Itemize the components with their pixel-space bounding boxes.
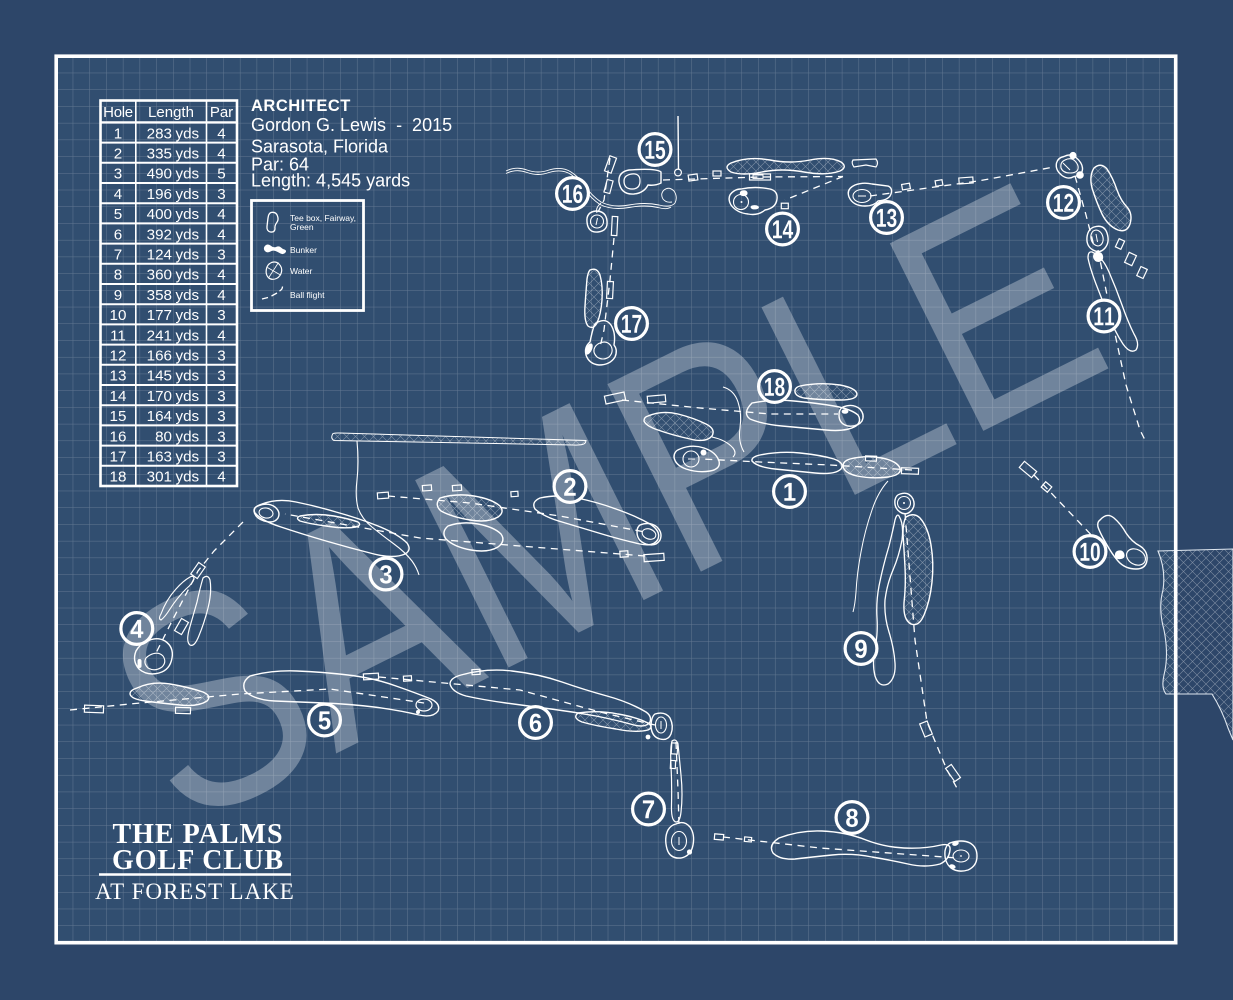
svg-text:3: 3: [217, 348, 225, 365]
svg-text:124: 124: [147, 247, 172, 264]
svg-text:358: 358: [147, 287, 172, 304]
svg-text:163: 163: [147, 449, 172, 466]
svg-text:Length: 4,545 yards: Length: 4,545 yards: [251, 171, 410, 191]
svg-text:yds: yds: [176, 307, 200, 324]
svg-text:490: 490: [147, 166, 172, 183]
svg-text:4: 4: [217, 287, 225, 304]
svg-text:yds: yds: [176, 267, 200, 284]
svg-text:2: 2: [114, 146, 122, 163]
svg-text:3: 3: [217, 428, 225, 445]
svg-text:Green: Green: [290, 222, 314, 232]
svg-text:Hole: Hole: [103, 104, 133, 121]
svg-text:ARCHITECT: ARCHITECT: [251, 97, 351, 115]
svg-text:392: 392: [147, 226, 172, 243]
svg-text:yds: yds: [176, 287, 200, 304]
svg-text:yds: yds: [176, 408, 200, 425]
svg-text:yds: yds: [176, 247, 200, 264]
svg-text:335: 335: [147, 146, 172, 163]
svg-text:yds: yds: [176, 327, 200, 344]
svg-text:360: 360: [147, 267, 172, 284]
svg-text:241: 241: [147, 327, 172, 344]
svg-text:13: 13: [110, 368, 127, 385]
svg-text:yds: yds: [176, 146, 200, 163]
svg-text:15: 15: [110, 408, 127, 425]
svg-text:400: 400: [147, 206, 172, 223]
svg-text:1: 1: [114, 125, 122, 142]
svg-text:10: 10: [110, 307, 127, 324]
svg-text:170: 170: [147, 388, 172, 405]
svg-text:4: 4: [217, 267, 225, 284]
svg-text:4: 4: [217, 226, 225, 243]
svg-text:4: 4: [217, 125, 225, 142]
svg-text:12: 12: [110, 348, 127, 365]
svg-text:8: 8: [114, 267, 122, 284]
svg-text:164: 164: [147, 408, 172, 425]
svg-text:yds: yds: [176, 166, 200, 183]
svg-text:18: 18: [110, 469, 127, 486]
svg-text:4: 4: [217, 146, 225, 163]
svg-text:3: 3: [114, 166, 122, 183]
svg-text:yds: yds: [176, 388, 200, 405]
svg-text:196: 196: [147, 186, 172, 203]
svg-text:yds: yds: [176, 186, 200, 203]
svg-text:Length: Length: [148, 104, 194, 121]
svg-text:3: 3: [217, 388, 225, 405]
svg-text:Bunker: Bunker: [290, 245, 317, 255]
svg-text:yds: yds: [176, 368, 200, 385]
svg-text:5: 5: [114, 206, 122, 223]
svg-text:16: 16: [110, 428, 127, 445]
svg-text:3: 3: [217, 449, 225, 466]
svg-text:80: 80: [155, 428, 172, 445]
svg-text:14: 14: [110, 388, 127, 405]
svg-text:yds: yds: [176, 428, 200, 445]
svg-text:9: 9: [114, 287, 122, 304]
svg-text:145: 145: [147, 368, 172, 385]
svg-text:4: 4: [114, 186, 122, 203]
svg-text:4: 4: [217, 327, 225, 344]
svg-text:yds: yds: [176, 206, 200, 223]
svg-text:5: 5: [217, 166, 225, 183]
svg-text:yds: yds: [176, 449, 200, 466]
svg-text:yds: yds: [176, 469, 200, 486]
svg-text:Gordon G. Lewis - 2015: Gordon G. Lewis - 2015: [251, 115, 452, 135]
svg-text:yds: yds: [176, 348, 200, 365]
svg-text:301: 301: [147, 469, 172, 486]
svg-text:Water: Water: [290, 266, 313, 276]
svg-text:3: 3: [217, 368, 225, 385]
svg-text:3: 3: [217, 307, 225, 324]
svg-text:7: 7: [114, 247, 122, 264]
svg-text:4: 4: [217, 469, 225, 486]
svg-text:3: 3: [217, 186, 225, 203]
svg-text:4: 4: [217, 206, 225, 223]
svg-text:283: 283: [147, 125, 172, 142]
svg-text:Par: Par: [210, 104, 233, 121]
svg-text:166: 166: [147, 348, 172, 365]
svg-text:yds: yds: [176, 226, 200, 243]
svg-text:11: 11: [110, 327, 126, 344]
svg-text:yds: yds: [176, 125, 200, 142]
svg-text:AT FOREST LAKE: AT FOREST LAKE: [95, 879, 295, 904]
svg-text:6: 6: [114, 226, 122, 243]
svg-text:17: 17: [110, 449, 127, 466]
svg-text:Ball flight: Ball flight: [290, 290, 325, 300]
svg-text:3: 3: [217, 247, 225, 264]
svg-text:177: 177: [147, 307, 172, 324]
svg-text:Sarasota, Florida: Sarasota, Florida: [251, 137, 389, 157]
svg-text:3: 3: [217, 408, 225, 425]
